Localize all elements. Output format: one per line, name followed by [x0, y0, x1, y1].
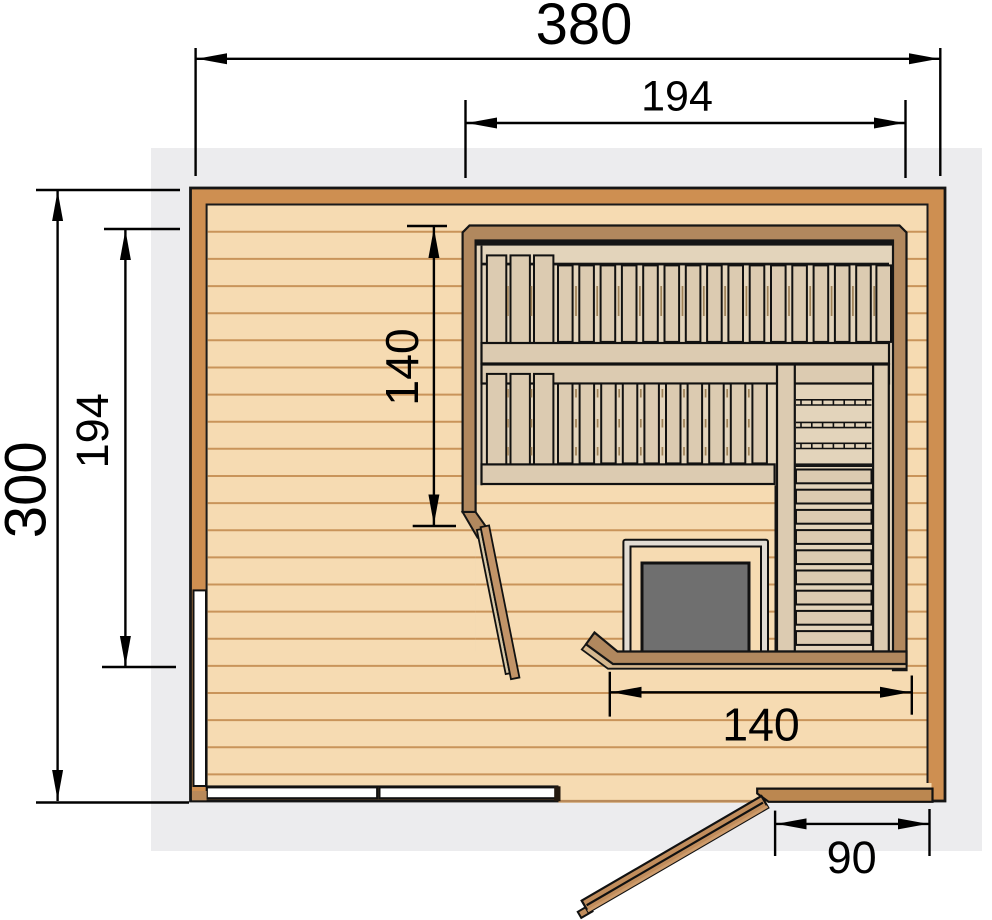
svg-text:140: 140: [722, 699, 800, 751]
svg-text:300: 300: [0, 441, 58, 538]
svg-text:194: 194: [641, 73, 713, 121]
svg-text:380: 380: [536, 0, 633, 57]
svg-text:90: 90: [827, 832, 877, 883]
svg-text:140: 140: [376, 328, 428, 406]
svg-text:194: 194: [67, 393, 118, 468]
